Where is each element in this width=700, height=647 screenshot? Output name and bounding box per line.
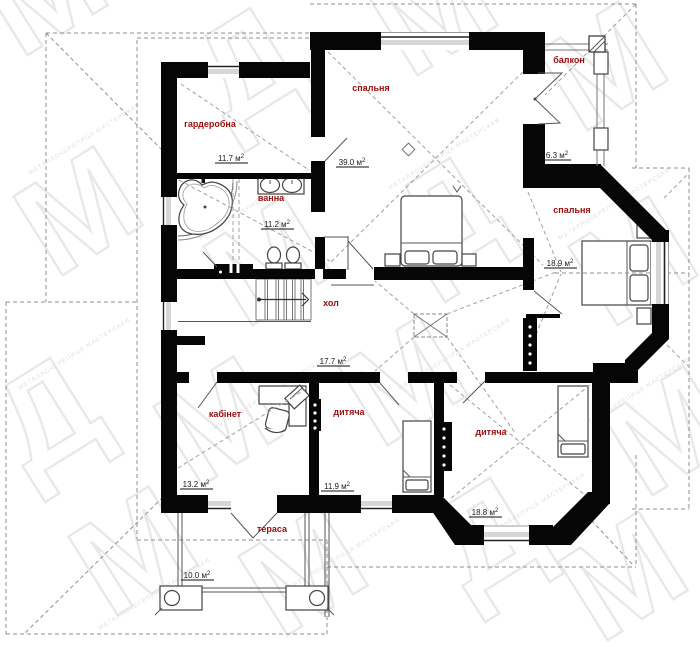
- svg-text:хол: хол: [323, 298, 339, 308]
- svg-text:спальня: спальня: [352, 83, 389, 93]
- svg-text:39.0 м2: 39.0 м2: [339, 158, 366, 167]
- svg-text:дитяча: дитяча: [333, 407, 365, 417]
- svg-text:18.9 м2: 18.9 м2: [547, 259, 574, 268]
- svg-text:гардеробна: гардеробна: [184, 119, 237, 129]
- svg-text:балкон: балкон: [553, 55, 585, 65]
- svg-text:спальня: спальня: [553, 205, 590, 215]
- svg-text:10.0 м2: 10.0 м2: [184, 571, 211, 580]
- svg-text:кабінет: кабінет: [209, 409, 242, 419]
- svg-text:тераса: тераса: [257, 524, 288, 534]
- svg-text:дитяча: дитяча: [475, 427, 507, 437]
- svg-text:18.8 м2: 18.8 м2: [472, 508, 499, 517]
- svg-text:13.2 м2: 13.2 м2: [183, 480, 210, 489]
- svg-text:17.7 м2: 17.7 м2: [320, 357, 347, 366]
- svg-text:11.2 м2: 11.2 м2: [264, 220, 291, 229]
- svg-text:11.7 м2: 11.7 м2: [218, 154, 245, 163]
- svg-text:11.9 м2: 11.9 м2: [324, 482, 351, 491]
- svg-text:ванна: ванна: [258, 193, 285, 203]
